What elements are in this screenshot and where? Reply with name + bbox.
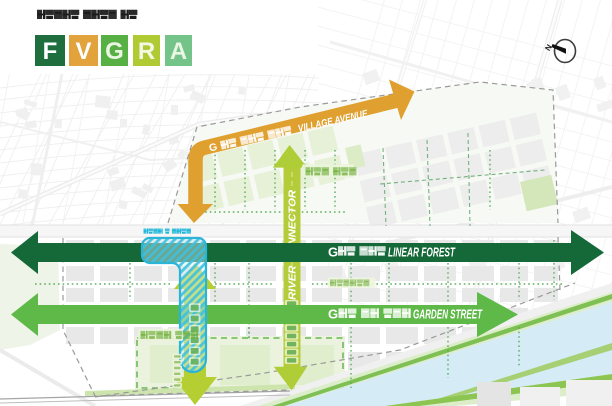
svg-text:V: V bbox=[75, 38, 91, 65]
svg-text:LINEAR FOREST: LINEAR FOREST bbox=[388, 246, 456, 260]
svg-text:G: G bbox=[328, 245, 338, 260]
svg-text:F: F bbox=[43, 38, 58, 65]
svg-text:R: R bbox=[138, 38, 155, 65]
svg-text:G: G bbox=[105, 38, 124, 65]
svg-text:A: A bbox=[170, 38, 187, 65]
svg-text:G: G bbox=[328, 307, 338, 322]
svg-text:GARDEN STREET: GARDEN STREET bbox=[413, 308, 483, 322]
